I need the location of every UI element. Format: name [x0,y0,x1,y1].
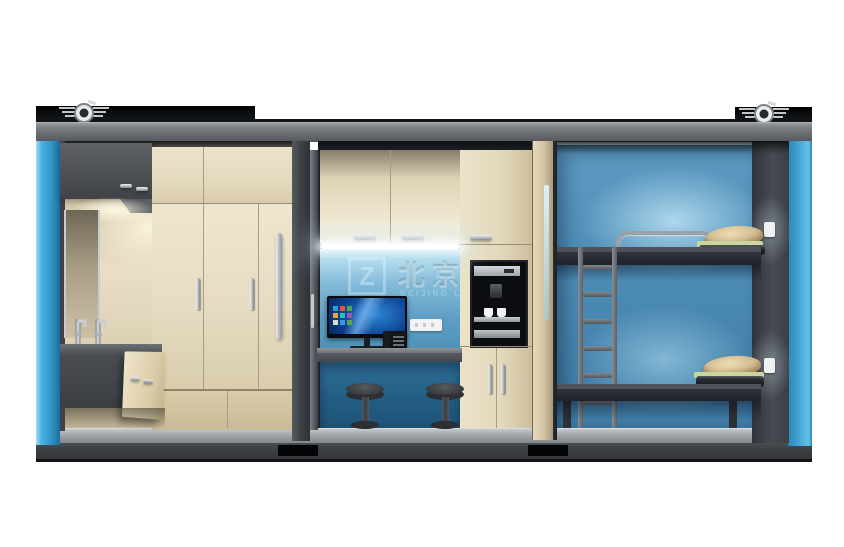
door-handle [131,377,140,381]
ladder-rung [583,292,612,297]
top-bunk-frame [557,252,761,265]
stool-base [431,421,459,429]
watermark-text-cn: 北京联 [398,254,460,293]
start-tiles [333,306,338,311]
roof-beam [36,122,812,142]
ladder-rung [583,319,612,324]
coffee-machine-top-panel [474,266,520,276]
office-nook: Z 北京联 BEIJING LIANZ [318,141,532,428]
door-glass-slit [544,185,549,320]
monitor-stand [364,338,370,346]
cabinet-handle [136,187,148,191]
socket-holes [415,323,437,327]
faucet-icon [88,315,108,347]
stool-base [351,421,379,429]
render-stage: Z 北京联 BEIJING LIANZ [0,0,844,547]
coffee-machine [470,260,528,348]
door-seam [203,204,204,389]
partition-wall-1 [292,141,310,441]
wall-socket [410,319,442,331]
watermark-logo: Z [348,257,386,295]
cabinet-handle [488,364,492,394]
door-handle [143,379,152,383]
door-seam [258,204,259,389]
base-seam [227,391,228,428]
container-side-panel-right [788,141,812,446]
cabinet-seam [460,346,532,347]
cabinet-seam [390,150,391,244]
stool-seat [426,383,464,395]
forklift-pocket [278,445,318,456]
wardrobe-upper-cabinets [152,147,292,204]
cabinet-handle [402,235,424,240]
bottom-bunk-frame [557,389,761,401]
base-frame [36,443,812,462]
monitor-screen [329,298,405,334]
cabinet-handle [354,235,376,240]
ladder-rung [583,265,612,270]
wardrobe-base-panels [152,389,292,430]
washroom [65,141,292,428]
partition-wall-2 [532,141,554,440]
ladder-rung [583,373,612,378]
coffee-display [504,269,514,273]
cabinet-handle [501,364,505,394]
wardrobe-long-handle [276,233,282,339]
coffee-cup [484,308,493,317]
cup-tray [474,317,520,322]
watermark-text-en: BEIJING LIANZ [400,289,460,298]
coffee-cup [497,308,506,317]
cabinet-seam [203,147,204,204]
cabinet-handle [120,184,132,188]
forklift-pocket [528,445,568,456]
cabinet-seam [460,244,532,245]
glass-door-edge [310,150,318,430]
wardrobe-handle [250,278,254,310]
door-seam [496,348,497,428]
wardrobe-doors [152,204,292,389]
container-side-panel-left [36,141,60,445]
light-switch [764,358,775,373]
phone-keys [393,336,404,348]
coffee-bottom-panel [474,330,520,338]
coffee-spout [490,284,502,298]
floor [58,428,790,444]
desk-edge [317,353,462,362]
bunk-shadow [557,401,761,419]
cabinet-handle [470,235,492,240]
ladder-rung [583,346,612,351]
ceiling-shadow [557,141,789,154]
light-switch [764,222,775,237]
glass-door-handle [311,294,314,328]
sink-shadow [65,408,165,428]
wardrobe-handle [196,278,200,310]
faucet-icon [68,315,88,347]
stool-seat [346,383,384,395]
